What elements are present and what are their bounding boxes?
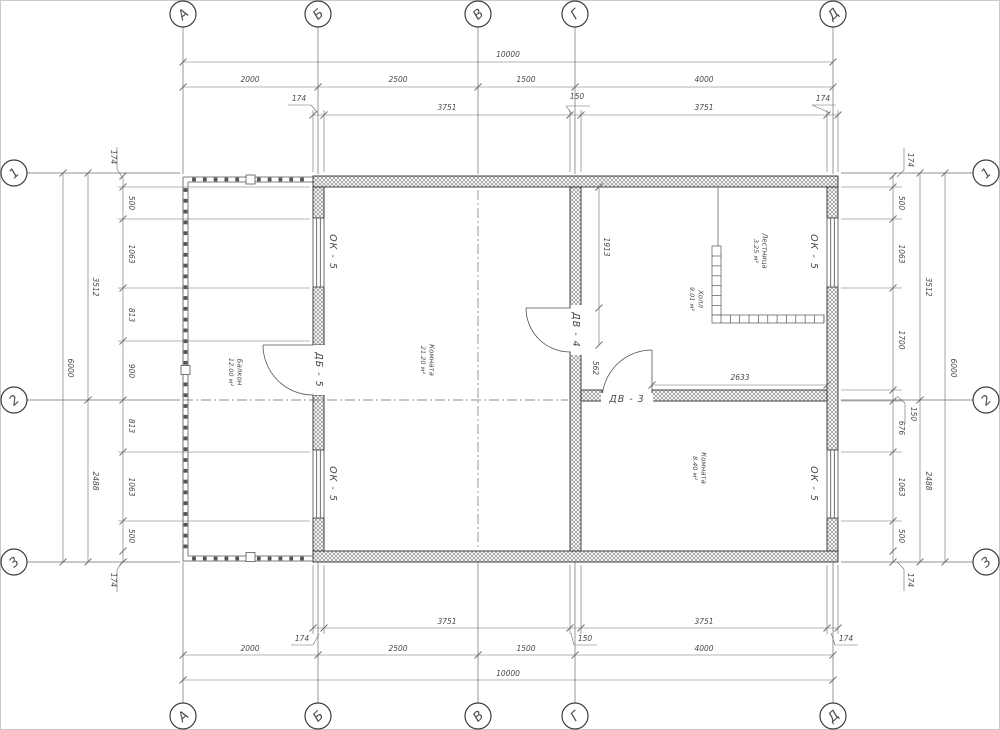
dim-text-right: 500: [897, 196, 906, 211]
railing-post: [236, 557, 239, 560]
dim-text-top: 1500: [516, 75, 535, 84]
railing-post: [184, 351, 187, 354]
door-hall-swing: [602, 350, 652, 400]
dim-text-bottom: 10000: [496, 669, 520, 678]
floor-plan-canvas: 1000020002500150040001743751150375117437…: [0, 0, 1000, 730]
railing-center-post: [246, 553, 255, 562]
dim-text-left: 3512: [91, 277, 100, 296]
opening-label-text: ОК - 5: [808, 466, 819, 502]
dim-text-bottom: 1500: [516, 644, 535, 653]
room-name: Балкон: [236, 359, 244, 386]
dim-leader: [897, 396, 905, 403]
wall-segment: [570, 352, 581, 551]
dim-text-left: 813: [127, 419, 136, 434]
railing-post: [184, 534, 187, 537]
window-label: ОК - 5: [327, 234, 338, 270]
dim-text-bottom: 174: [295, 634, 310, 643]
wall-segment: [313, 176, 838, 187]
dim-text-left: 174: [109, 573, 118, 588]
window-symbol: [827, 450, 838, 518]
dim-leader: [897, 170, 904, 177]
railing-post: [184, 437, 187, 440]
railing-post: [225, 178, 228, 181]
window-label: ОК - 5: [808, 466, 819, 502]
opening-label-text: ОК - 5: [327, 466, 338, 502]
railing-post: [184, 361, 187, 364]
dim-text-bottom: 2000: [240, 644, 259, 653]
door-balcony-swing: [263, 345, 313, 395]
railing-post: [184, 405, 187, 408]
room-name: Комната: [700, 452, 708, 484]
railing-post: [184, 199, 187, 202]
window-label: ОК - 5: [327, 466, 338, 502]
wall-segment: [313, 518, 324, 551]
dim-text-left: 1063: [127, 477, 136, 496]
railing-post: [214, 557, 217, 560]
dim-text-left: 813: [127, 308, 136, 323]
railing-post: [225, 557, 228, 560]
railing-post: [184, 243, 187, 246]
room-area: 9.01 м²: [688, 287, 696, 311]
opening-label-text: ДБ - 5: [313, 351, 324, 387]
room-name: Лестница: [761, 232, 769, 269]
railing-center-post: [246, 175, 255, 184]
railing-post: [184, 426, 187, 429]
railing-post: [184, 502, 187, 505]
railing-post: [184, 383, 187, 386]
dim-text-bottom: 2500: [388, 644, 407, 653]
room-name: Комната: [428, 344, 436, 376]
railing-center-post: [181, 366, 190, 375]
dim-leader: [571, 633, 574, 645]
dim-text-right: 500: [897, 529, 906, 544]
wall-segment: [652, 390, 827, 401]
opening-label-text: ДВ - 4: [570, 311, 581, 347]
railing-post: [184, 189, 187, 192]
dim-text-top: 4000: [694, 75, 713, 84]
railing-post: [184, 394, 187, 397]
wall-segment: [313, 287, 324, 345]
railing-post: [193, 557, 196, 560]
room-label: Балкон12.00 м²: [227, 358, 244, 387]
room-area: 8.40 м²: [691, 456, 699, 480]
wall-segment: [313, 395, 324, 450]
dim-text-interior: 1913: [602, 237, 611, 256]
door-label: ДБ - 5: [313, 351, 324, 387]
wall-segment: [570, 187, 581, 308]
window-symbol: [313, 218, 324, 287]
railing-post: [257, 557, 260, 560]
railing-post: [184, 448, 187, 451]
axis-bubbles: АБВГДАБВГД123123: [1, 1, 999, 729]
dim-text-right: 676: [897, 421, 906, 436]
room-area: 12.00 м²: [227, 358, 235, 387]
dim-text-top: 150: [570, 92, 585, 101]
railing-post: [203, 178, 206, 181]
room-label: Холл9.01 м²: [688, 287, 705, 311]
railing-post: [268, 178, 271, 181]
dim-text-right: 150: [909, 407, 918, 422]
wall-segment: [827, 187, 838, 218]
railing-post: [184, 523, 187, 526]
dim-text-interior: 2633: [730, 373, 749, 382]
dim-text-right: 1063: [897, 244, 906, 263]
dim-text-left: 174: [109, 150, 118, 165]
railing-post: [184, 415, 187, 418]
dim-leader: [311, 105, 318, 113]
wall-segment: [313, 551, 838, 562]
dim-text-top: 2000: [240, 75, 259, 84]
dim-text-bottom: 3751: [694, 617, 713, 626]
railing-post: [184, 264, 187, 267]
dim-text-right: 1063: [897, 477, 906, 496]
room-area: 21.20 м²: [419, 346, 427, 375]
dim-text-left: 900: [127, 364, 136, 379]
window-symbol: [827, 218, 838, 287]
railing-post: [184, 513, 187, 516]
dim-text-top: 3751: [437, 103, 456, 112]
railing-post: [184, 329, 187, 332]
dim-text-left: 500: [127, 196, 136, 211]
dim-text-bottom: 3751: [437, 617, 456, 626]
railing-post: [184, 275, 187, 278]
walls: [313, 176, 838, 562]
opening-label-text: ОК - 5: [808, 234, 819, 270]
dim-text-right: 174: [906, 153, 915, 168]
dim-text-top: 174: [816, 94, 831, 103]
railing-post: [184, 232, 187, 235]
railing-post: [184, 545, 187, 548]
dim-text-bottom: 4000: [694, 644, 713, 653]
wall-segment: [827, 518, 838, 551]
door-room-swing: [526, 308, 570, 352]
dim-leader: [897, 562, 904, 569]
opening-labels: ОК - 5ОК - 5ОК - 5ОК - 5ДБ - 5ДВ - 4ДВ -…: [313, 234, 819, 502]
railing-post: [290, 557, 293, 560]
floor-plan-sheet: 1000020002500150040001743751150375117437…: [0, 0, 1000, 730]
dim-leader: [566, 106, 572, 114]
dim-text-left: 6000: [66, 358, 75, 377]
railing-post: [290, 178, 293, 181]
railing-post: [193, 178, 196, 181]
railing-post: [184, 307, 187, 310]
room-area: 3.25 м²: [752, 239, 760, 263]
wall-segment: [581, 390, 602, 401]
opening-label-text: ДВ - 3: [608, 394, 644, 405]
door-label: ДВ - 4: [570, 311, 581, 347]
balcony-railing: [181, 175, 313, 562]
room-label: Комната8.40 м²: [691, 452, 708, 484]
railing-post: [184, 459, 187, 462]
room-labels: Балкон12.00 м²Комната21.20 м²Холл9.01 м²…: [227, 232, 769, 484]
room-label: Комната21.20 м²: [419, 344, 436, 376]
room-name: Холл: [697, 289, 705, 309]
railing-post: [184, 253, 187, 256]
dim-text-top: 3751: [694, 103, 713, 112]
window-label: ОК - 5: [808, 234, 819, 270]
railing-post: [184, 210, 187, 213]
railing-post: [268, 557, 271, 560]
wall-segment: [313, 187, 324, 218]
dim-text-right: 6000: [949, 358, 958, 377]
room-label: Лестница3.25 м²: [752, 232, 769, 269]
dim-text-top: 2500: [388, 75, 407, 84]
dim-text-left: 1063: [127, 244, 136, 263]
railing-post: [184, 318, 187, 321]
dim-text-left: 2488: [91, 471, 100, 490]
railing-post: [184, 221, 187, 224]
window-symbol: [313, 450, 324, 518]
dimension-texts: 1000020002500150040001743751150375117437…: [66, 50, 958, 678]
dimension-lines: [60, 59, 949, 684]
dim-text-left: 500: [127, 529, 136, 544]
railing-post: [184, 297, 187, 300]
railing-post: [214, 178, 217, 181]
dim-text-bottom: 150: [578, 634, 593, 643]
railing-post: [301, 178, 304, 181]
dim-text-right: 2488: [924, 471, 933, 490]
opening-label-text: ОК - 5: [327, 234, 338, 270]
railing-post: [301, 557, 304, 560]
dim-text-right: 174: [906, 573, 915, 588]
dim-text-right: 1700: [897, 330, 906, 349]
railing-post: [184, 469, 187, 472]
dim-text-bottom: 174: [839, 634, 854, 643]
dim-leader: [812, 105, 830, 113]
wall-segment: [827, 287, 838, 450]
dim-text-top: 10000: [496, 50, 520, 59]
dim-text-right: 3512: [924, 277, 933, 296]
dim-text-top: 174: [292, 94, 307, 103]
railing-post: [279, 557, 282, 560]
railing-post: [203, 557, 206, 560]
railing-post: [184, 480, 187, 483]
dim-text-interior: 562: [591, 361, 600, 376]
dim-leader: [117, 562, 122, 570]
railing-post: [279, 178, 282, 181]
railing-post: [184, 491, 187, 494]
railing-post: [257, 178, 260, 181]
railing-post: [236, 178, 239, 181]
